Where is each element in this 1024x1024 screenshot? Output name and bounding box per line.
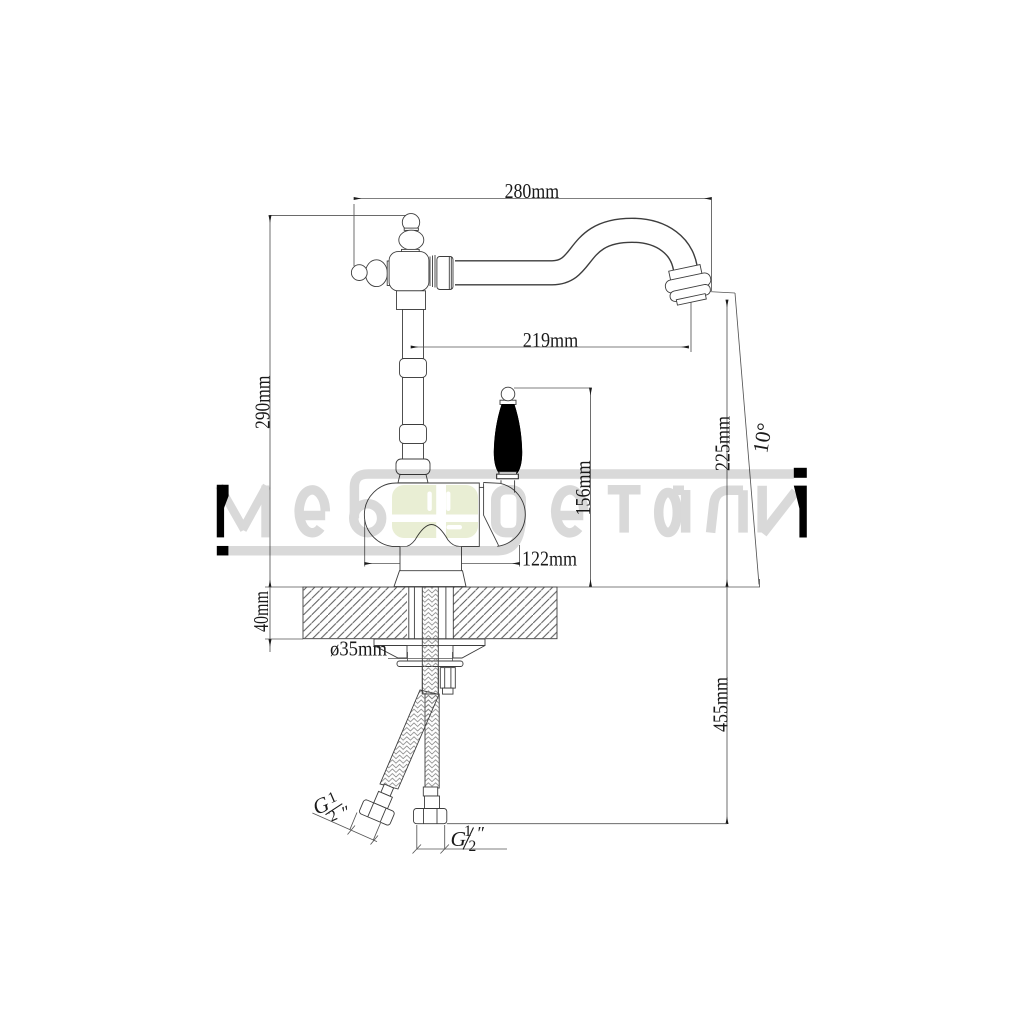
- svg-text:280mm: 280mm: [505, 179, 560, 203]
- svg-text:″: ″: [478, 823, 486, 843]
- svg-text:225mm: 225mm: [711, 416, 735, 471]
- svg-text:10°: 10°: [748, 421, 777, 455]
- svg-text:219mm: 219mm: [523, 328, 579, 352]
- svg-text:455mm: 455mm: [709, 677, 733, 732]
- svg-text:290mm: 290mm: [251, 375, 275, 429]
- svg-text:2: 2: [469, 838, 477, 855]
- svg-text:ø35mm: ø35mm: [330, 637, 387, 661]
- svg-text:122mm: 122mm: [522, 547, 577, 571]
- svg-text:40mm: 40mm: [249, 591, 273, 632]
